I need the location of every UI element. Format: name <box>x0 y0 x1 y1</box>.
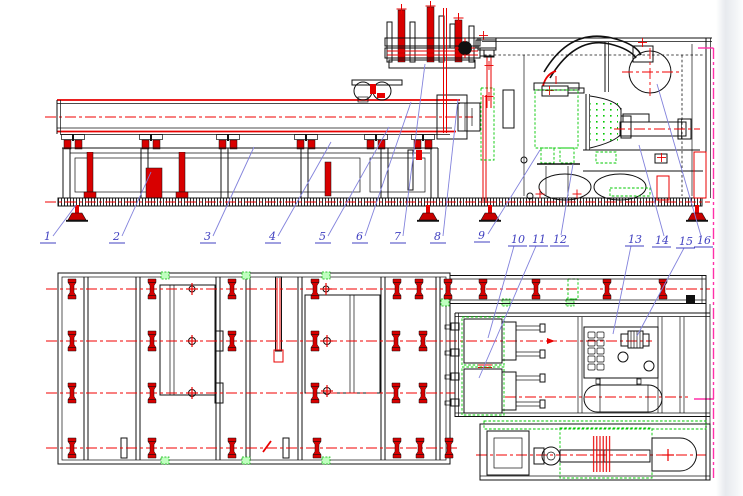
right-cabinet <box>478 36 712 203</box>
glue-tank-block <box>534 76 580 196</box>
svg-text:14: 14 <box>655 234 669 247</box>
motor-top-view <box>621 331 649 348</box>
part-label-10: 10 <box>508 233 527 246</box>
vacuum-hose <box>542 36 641 96</box>
svg-text:5: 5 <box>319 230 326 243</box>
part-label-6: 6 <box>352 230 368 243</box>
svg-text:11: 11 <box>532 233 546 246</box>
part-label-14: 14 <box>652 234 671 247</box>
main-beam <box>45 95 480 139</box>
part-label-4: 4 <box>265 230 281 243</box>
svg-text:15: 15 <box>679 235 693 248</box>
part-label-5: 5 <box>315 230 331 243</box>
lower-drive-assembly <box>480 421 710 480</box>
beam-support-rollers <box>62 134 435 149</box>
blower-housing <box>622 38 680 96</box>
screw-jack <box>176 152 188 198</box>
plan-centerlines <box>46 289 710 455</box>
part-label-11: 11 <box>529 233 548 246</box>
cad-drawing-page: 1 2 3 4 5 6 7 8 9 10 11 12 13 14 15 16 <box>0 0 743 496</box>
saw-head-assembly <box>352 1 496 133</box>
part-label-3: 3 <box>200 230 216 243</box>
part-label-2: 2 <box>109 230 125 243</box>
control-panel <box>584 327 658 378</box>
leveling-feet <box>66 205 708 221</box>
part-label-16: 16 <box>694 234 713 247</box>
part-label-12: 12 <box>550 233 569 246</box>
push-cylinder <box>614 114 700 139</box>
part-label-9: 9 <box>474 229 490 242</box>
svg-text:16: 16 <box>697 234 711 247</box>
saw-travel-rod <box>274 277 283 362</box>
svg-text:8: 8 <box>434 230 441 243</box>
cad-drawing: 1 2 3 4 5 6 7 8 9 10 11 12 13 14 15 16 <box>0 0 743 496</box>
svg-text:7: 7 <box>394 230 401 243</box>
svg-text:1: 1 <box>44 230 51 243</box>
plan-main-frame <box>58 272 574 464</box>
svg-text:12: 12 <box>553 233 567 246</box>
part-label-1: 1 <box>40 230 56 243</box>
page-edge-shadow <box>716 0 743 496</box>
part-label-13: 13 <box>625 233 644 246</box>
svg-text:13: 13 <box>628 233 642 246</box>
svg-text:2: 2 <box>112 230 120 243</box>
screw-jack <box>84 152 96 198</box>
svg-text:4: 4 <box>268 230 276 243</box>
magenta-boundary <box>694 48 714 478</box>
svg-text:9: 9 <box>478 229 485 242</box>
drive-block <box>146 168 162 198</box>
plan-right-frame <box>445 304 710 480</box>
panel-buttons <box>588 332 604 370</box>
svg-text:6: 6 <box>356 230 363 243</box>
stadium-tank <box>584 385 662 412</box>
clamp-unit-2 <box>445 367 545 415</box>
part-label-15: 15 <box>676 235 695 248</box>
svg-text:10: 10 <box>511 233 525 246</box>
feed-clamp <box>352 80 402 102</box>
plan-view <box>46 272 710 480</box>
part-labels: 1 2 3 4 5 6 7 8 9 10 11 12 13 14 15 16 <box>40 229 713 248</box>
pivot-dot <box>458 41 472 55</box>
side-elevation-view <box>45 1 714 478</box>
svg-text:3: 3 <box>204 230 211 243</box>
hose-elbow <box>543 71 556 86</box>
